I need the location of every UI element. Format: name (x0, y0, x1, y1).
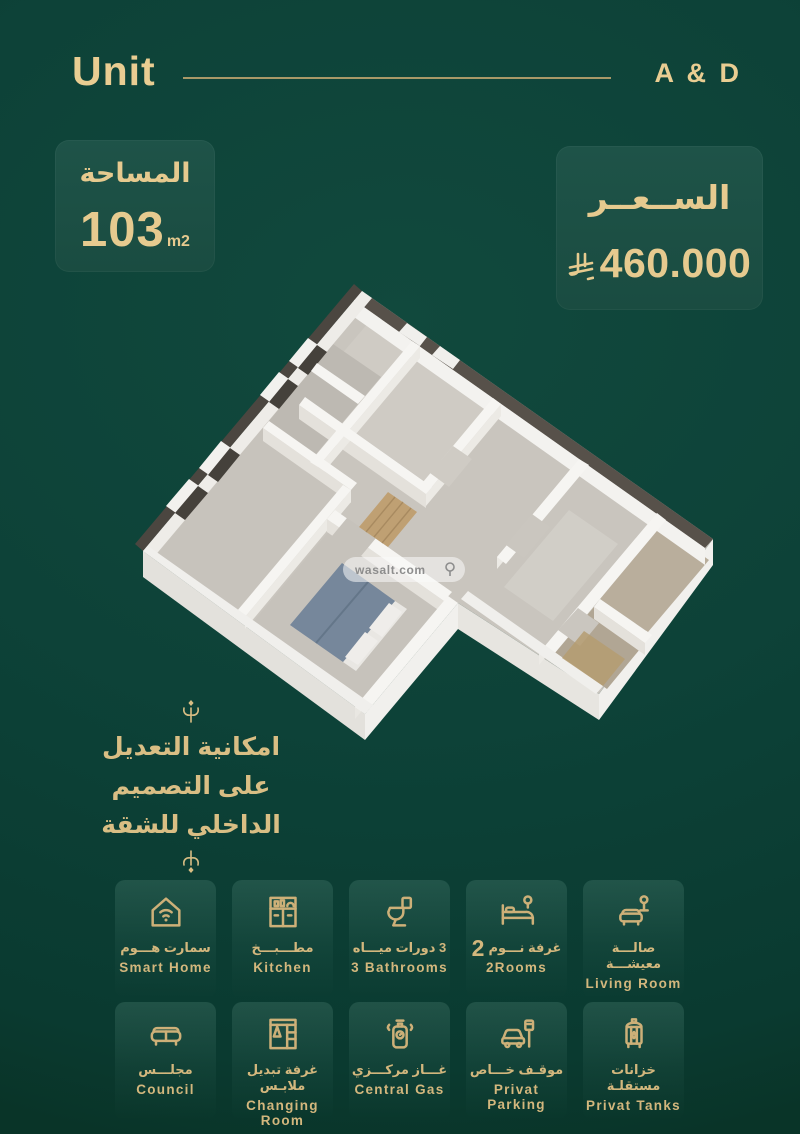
feature-card-bedrooms: غرفة نـــوم 2 2Rooms (466, 880, 567, 998)
council-sofa-icon (146, 1014, 186, 1054)
feature-label-en: Council (115, 1082, 216, 1097)
feature-label-ar: مجلـــس (138, 1062, 192, 1078)
note-line-1: امكانية التعديل (62, 728, 320, 767)
feature-label-ar: مطـــبـــخ (251, 940, 313, 956)
area-value: 103 (80, 202, 165, 258)
feature-card-smart-home: سمارت هـــوم Smart Home (115, 880, 216, 998)
kitchen-icon (263, 892, 303, 932)
feature-label-en: 3 Bathrooms (349, 960, 450, 975)
feature-card-living-room: صالـــة معيشـــة Living Room (583, 880, 684, 998)
feature-label-en: Privat Tanks (583, 1098, 684, 1113)
feature-label-en: Smart Home (115, 960, 216, 975)
header-divider-line (183, 77, 611, 79)
feature-label-en: 2Rooms (466, 960, 567, 975)
feature-label-en: Changing Room (232, 1098, 333, 1128)
feature-card-kitchen: مطـــبـــخ Kitchen (232, 880, 333, 998)
fleur-ornament-top-icon (178, 698, 204, 728)
floorplan-3d-render: wasalt.com (105, 278, 785, 753)
feature-label-ar: غرفة نـــوم (488, 940, 561, 956)
car-parking-icon (497, 1014, 537, 1054)
saudi-riyal-icon (568, 252, 594, 282)
feature-label-ar: سمارت هـــوم (120, 940, 211, 956)
watermark: wasalt.com (343, 557, 465, 582)
feature-label-ar: غـــاز مركـــزي (352, 1062, 447, 1078)
gas-cylinder-icon (380, 1014, 420, 1054)
feature-label-ar: خزانات مستقلـة (583, 1062, 684, 1094)
feature-label-en: Central Gas (349, 1082, 450, 1097)
feature-card-parking: موقـف خـــاص Privat Parking (466, 1002, 567, 1120)
real-estate-poster: Unit A & D المساحة 103 m2 الســعــر 460.… (0, 0, 800, 1134)
smart-home-icon (146, 892, 186, 932)
water-tank-icon (614, 1014, 654, 1054)
unit-value: A & D (655, 58, 743, 89)
note-line-2: على التصميم (62, 767, 320, 806)
feature-card-tanks: خزانات مستقلـة Privat Tanks (583, 1002, 684, 1120)
area-title: المساحة (55, 158, 215, 189)
bed-icon (497, 892, 537, 932)
unit-title: Unit (72, 48, 156, 95)
toilet-icon (380, 892, 420, 932)
sofa-lamp-icon (614, 892, 654, 932)
feature-label-ar: صالـــة معيشـــة (583, 940, 684, 972)
svg-text:wasalt.com: wasalt.com (354, 563, 426, 577)
modification-note: امكانية التعديل على التصميم الداخلي للشق… (62, 698, 320, 875)
feature-label-en: Privat Parking (466, 1082, 567, 1112)
feature-label-ar: 3 دورات ميـــاه (353, 940, 446, 956)
wardrobe-icon (263, 1014, 303, 1054)
feature-card-bathrooms: 3 دورات ميـــاه 3 Bathrooms (349, 880, 450, 998)
feature-label-ar: موقـف خـــاص (470, 1062, 563, 1078)
feature-card-council: مجلـــس Council (115, 1002, 216, 1120)
area-unit: m2 (167, 233, 190, 251)
feature-card-changing-room: غرفة تبديل ملابـس Changing Room (232, 1002, 333, 1120)
feature-card-central-gas: غـــاز مركـــزي Central Gas (349, 1002, 450, 1120)
area-box: المساحة 103 m2 (55, 140, 215, 272)
feature-label-ar: غرفة تبديل ملابـس (232, 1062, 333, 1094)
feature-label-en: Living Room (583, 976, 684, 991)
price-title: الســعــر (556, 178, 763, 217)
feature-label-en: Kitchen (232, 960, 333, 975)
note-line-3: الداخلي للشقة (62, 806, 320, 845)
fleur-ornament-bottom-icon (178, 845, 204, 875)
feature-count: 2 (472, 941, 485, 955)
